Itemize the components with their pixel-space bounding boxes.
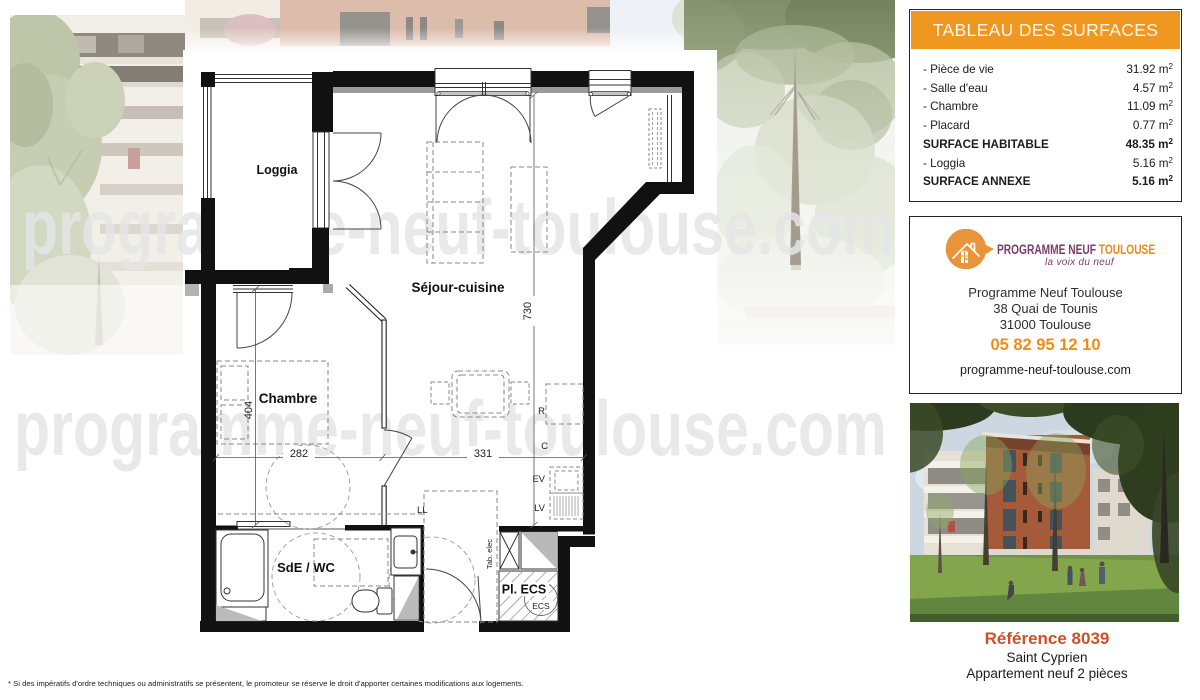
svg-text:C: C (541, 441, 548, 452)
svg-text:404: 404 (243, 401, 255, 419)
svg-text:Chambre: Chambre (259, 391, 318, 406)
svg-text:331: 331 (474, 448, 492, 460)
svg-text:Pl. ECS: Pl. ECS (502, 583, 546, 597)
svg-text:ECS: ECS (532, 601, 550, 611)
svg-text:282: 282 (290, 448, 308, 460)
svg-text:Séjour-cuisine: Séjour-cuisine (411, 280, 505, 295)
svg-text:Loggia: Loggia (257, 163, 299, 177)
svg-text:Tab. elec: Tab. elec (485, 539, 494, 569)
svg-text:R: R (538, 406, 545, 417)
svg-text:LV: LV (534, 503, 546, 514)
svg-text:730: 730 (522, 302, 534, 320)
svg-text:LL: LL (417, 505, 428, 516)
svg-text:SdE / WC: SdE / WC (277, 560, 335, 575)
